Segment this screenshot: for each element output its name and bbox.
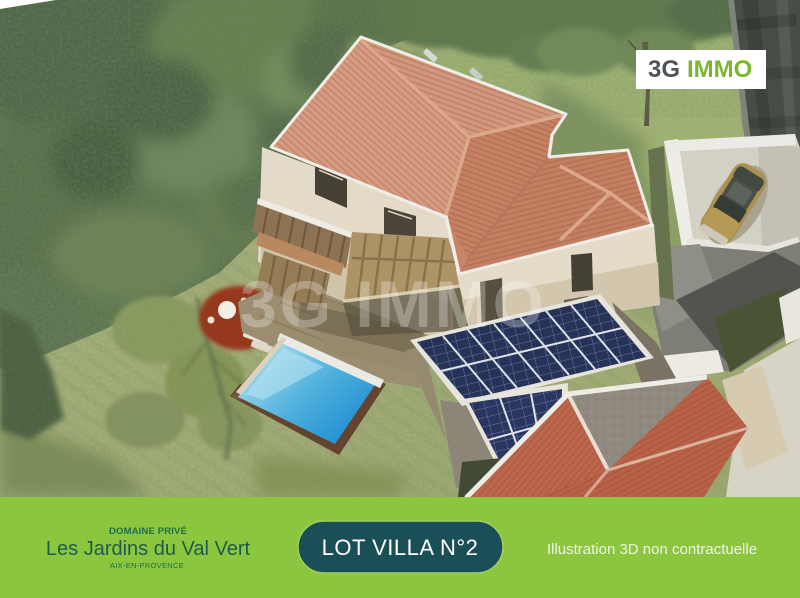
svg-text:3G IMMO: 3G IMMO: [240, 267, 547, 341]
svg-text:AIX-EN-PROVENCE: AIX-EN-PROVENCE: [110, 561, 184, 570]
svg-text:Illustration 3D non contractue: Illustration 3D non contractuelle: [547, 541, 757, 558]
svg-text:Les Jardins du Val Vert: Les Jardins du Val Vert: [46, 538, 251, 560]
svg-text:IMMO: IMMO: [687, 56, 752, 83]
svg-text:DOMAINE PRIVÉ: DOMAINE PRIVÉ: [109, 526, 187, 537]
svg-text:3G: 3G: [648, 56, 680, 83]
svg-text:LOT VILLA N°2: LOT VILLA N°2: [322, 535, 479, 560]
